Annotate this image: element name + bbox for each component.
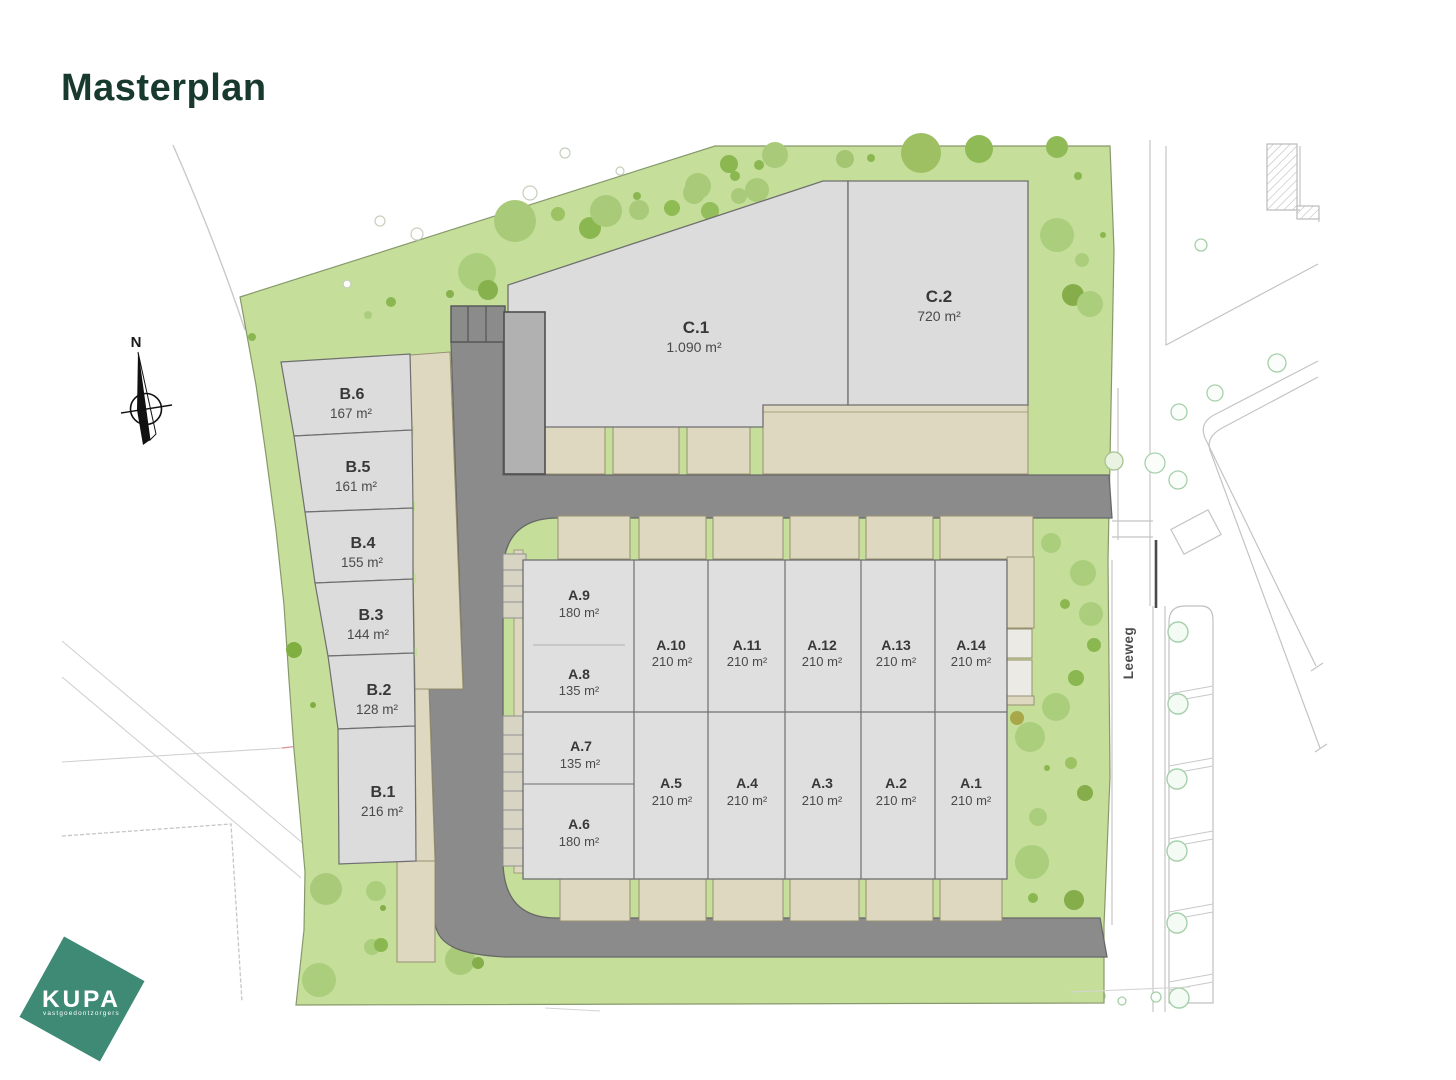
svg-text:210 m²: 210 m² (727, 654, 768, 669)
svg-text:A.5: A.5 (660, 775, 682, 791)
svg-text:720 m²: 720 m² (917, 308, 961, 324)
svg-text:210 m²: 210 m² (802, 654, 843, 669)
svg-text:B.5: B.5 (346, 459, 371, 476)
svg-text:A.6: A.6 (568, 816, 590, 832)
svg-text:A.2: A.2 (885, 775, 907, 791)
svg-text:180 m²: 180 m² (559, 834, 600, 849)
svg-text:A.7: A.7 (570, 738, 592, 754)
svg-text:A.12: A.12 (807, 637, 837, 653)
svg-text:167 m²: 167 m² (330, 406, 373, 421)
svg-text:vastgoedontzorgers: vastgoedontzorgers (43, 1010, 120, 1017)
svg-text:216 m²: 216 m² (361, 804, 404, 819)
svg-text:A.1: A.1 (960, 775, 982, 791)
svg-text:A.3: A.3 (811, 775, 833, 791)
svg-text:210 m²: 210 m² (652, 793, 693, 808)
svg-text:161 m²: 161 m² (335, 479, 378, 494)
svg-text:210 m²: 210 m² (652, 654, 693, 669)
svg-text:B.1: B.1 (371, 784, 396, 801)
svg-text:A.14: A.14 (956, 637, 986, 653)
svg-text:A.4: A.4 (736, 775, 758, 791)
svg-text:210 m²: 210 m² (951, 793, 992, 808)
svg-text:144 m²: 144 m² (347, 627, 390, 642)
svg-text:Masterplan: Masterplan (61, 67, 267, 109)
svg-text:210 m²: 210 m² (876, 793, 917, 808)
svg-text:128 m²: 128 m² (356, 702, 399, 717)
svg-text:135 m²: 135 m² (560, 756, 601, 771)
svg-text:B.2: B.2 (367, 682, 392, 699)
svg-text:155 m²: 155 m² (341, 555, 384, 570)
svg-text:135 m²: 135 m² (559, 683, 600, 698)
svg-text:A.9: A.9 (568, 587, 590, 603)
svg-text:210 m²: 210 m² (727, 793, 768, 808)
svg-text:180 m²: 180 m² (559, 605, 600, 620)
svg-text:A.10: A.10 (656, 637, 686, 653)
svg-text:210 m²: 210 m² (951, 654, 992, 669)
svg-text:N: N (131, 334, 142, 351)
svg-text:C.2: C.2 (926, 287, 952, 306)
svg-text:A.8: A.8 (568, 666, 590, 682)
svg-text:C.1: C.1 (683, 318, 709, 337)
svg-text:210 m²: 210 m² (876, 654, 917, 669)
svg-text:B.6: B.6 (340, 386, 365, 403)
svg-text:KUPA: KUPA (42, 986, 121, 1013)
svg-text:A.13: A.13 (881, 637, 911, 653)
svg-text:B.4: B.4 (351, 535, 376, 552)
svg-text:B.3: B.3 (359, 607, 384, 624)
svg-text:210 m²: 210 m² (802, 793, 843, 808)
svg-text:1.090 m²: 1.090 m² (666, 339, 722, 355)
svg-text:Leeweg: Leeweg (1121, 627, 1136, 680)
svg-text:A.11: A.11 (733, 637, 762, 653)
